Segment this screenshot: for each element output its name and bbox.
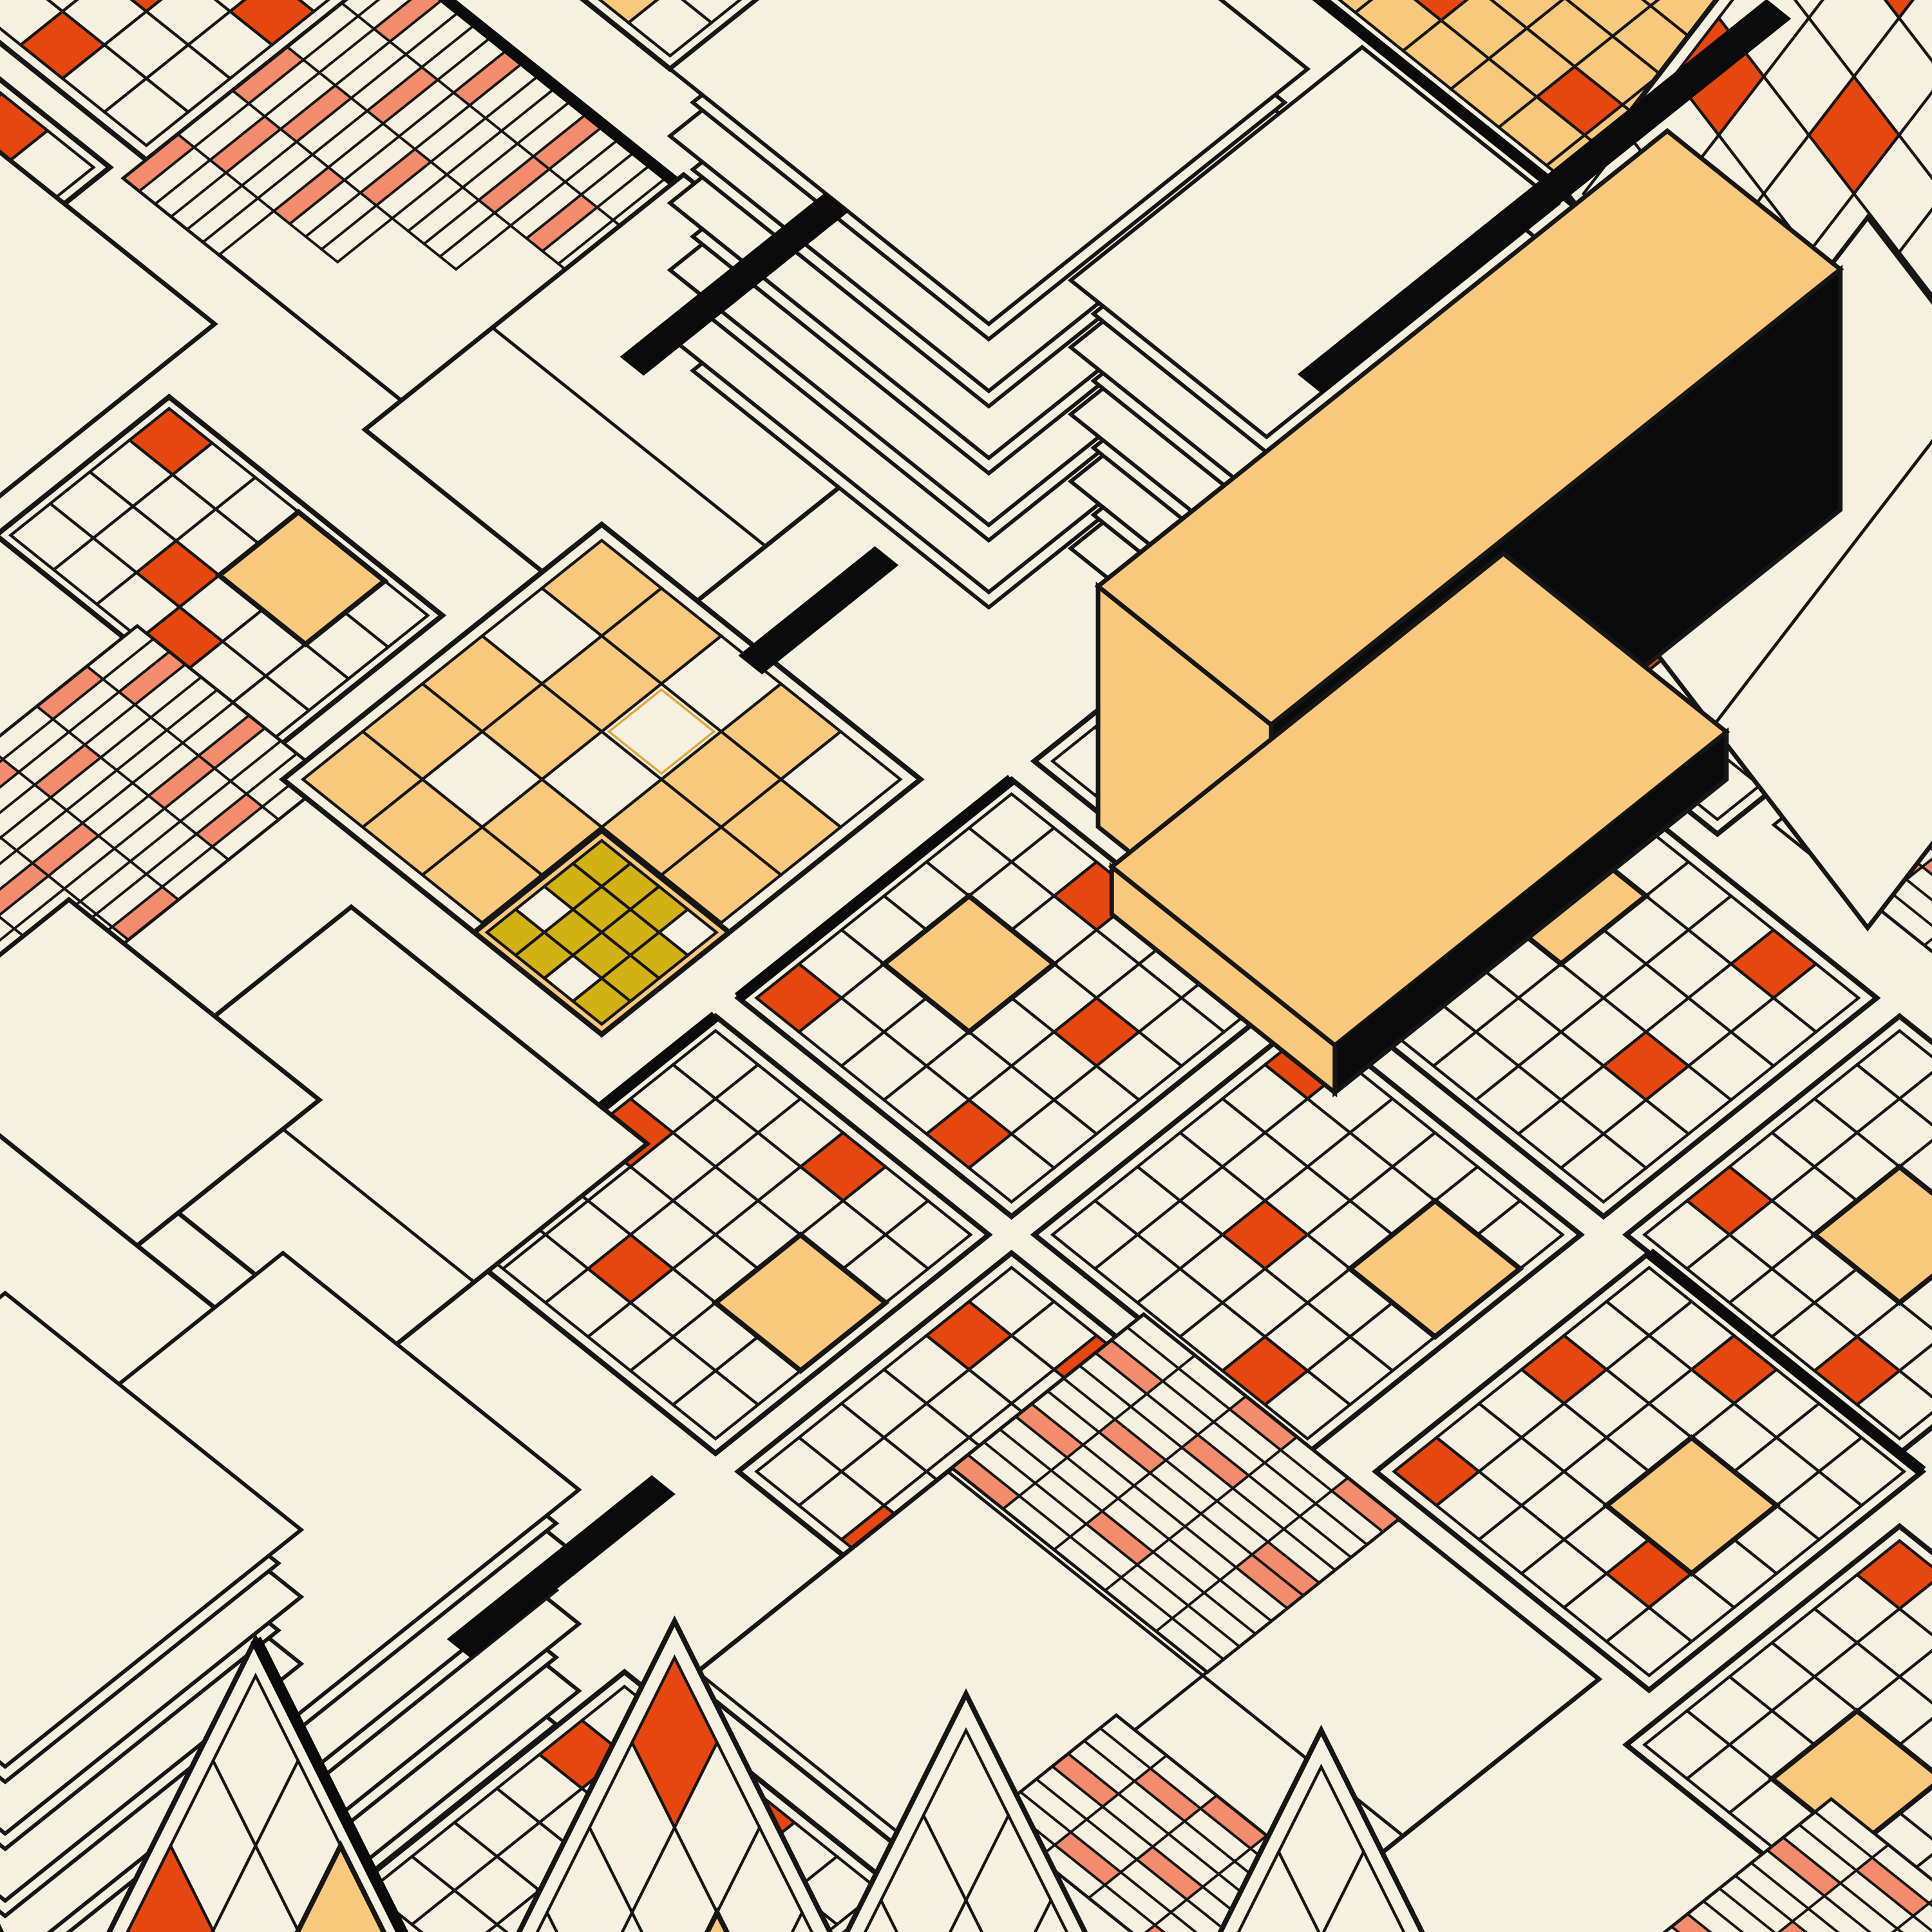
artwork-canvas	[0, 0, 1932, 1932]
generative-isometric-artwork	[0, 0, 1932, 1932]
